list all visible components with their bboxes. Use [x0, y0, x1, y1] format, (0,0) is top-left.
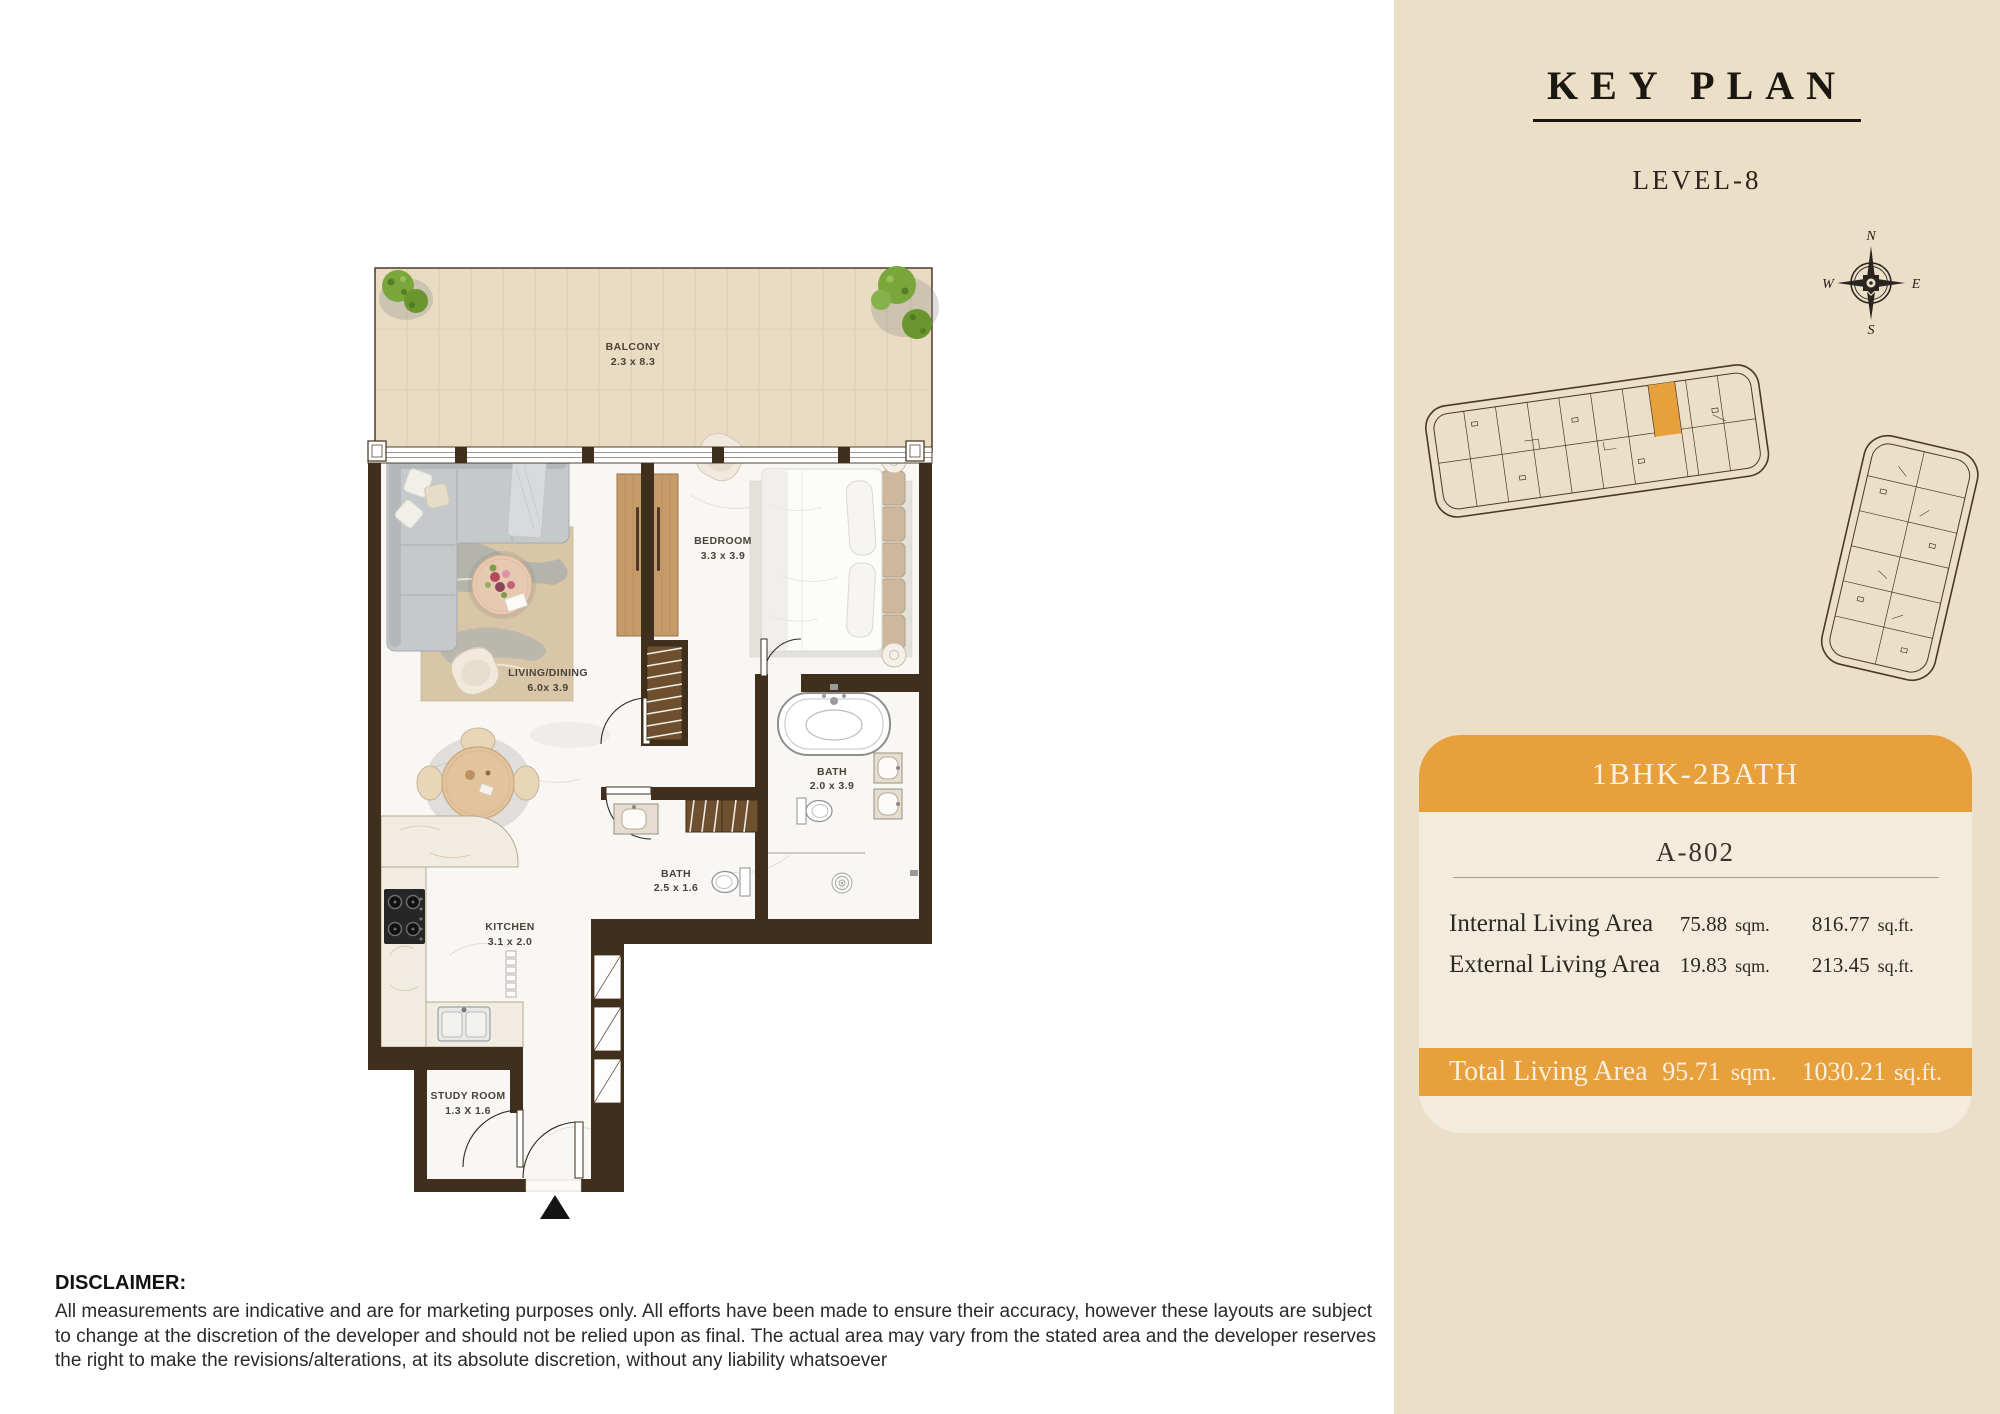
- kitchen-sink: [438, 1007, 490, 1041]
- kitchen-label: KITCHEN: [485, 921, 534, 933]
- ensuite-dims: 2.0 x 3.9: [810, 780, 854, 792]
- floor-plan: BALCONY 2.3 x 8.3: [360, 255, 945, 1230]
- total-sqft-value: 1030.21: [1802, 1057, 1887, 1087]
- internal-sqft-value: 816.77: [1812, 912, 1870, 937]
- living-dims: 6.0x 3.9: [527, 682, 568, 694]
- total-sqft-unit: sq.ft.: [1894, 1060, 1942, 1087]
- compass-north: N: [1865, 229, 1876, 244]
- disclaimer: DISCLAIMER: All measurements are indicat…: [55, 1272, 1390, 1374]
- unit-type-banner: 1BHK-2BATH: [1419, 735, 1972, 812]
- study-dims: 1.3 X 1.6: [445, 1105, 491, 1117]
- unit-type-label: 1BHK-2BATH: [1592, 756, 1800, 792]
- entry-arrow: [540, 1195, 570, 1219]
- disclaimer-heading: DISCLAIMER:: [55, 1272, 1390, 1295]
- pillow: [845, 480, 876, 556]
- louver-closet-bath: [686, 800, 758, 832]
- internal-area-label: Internal Living Area: [1449, 910, 1662, 938]
- total-sqm-value: 95.71: [1662, 1057, 1721, 1087]
- total-area-bar: Total Living Area 95.71 sqm. 1030.21 sq.…: [1419, 1048, 1972, 1096]
- hallway-cabinets: [594, 955, 621, 1103]
- balcony-post: [368, 441, 386, 461]
- dining-table: [442, 747, 514, 819]
- coffee-table: [468, 551, 536, 619]
- balcony: BALCONY 2.3 x 8.3: [375, 266, 939, 451]
- compass-west: W: [1822, 277, 1835, 292]
- guest-vanity: [614, 804, 658, 834]
- key-plan-sidebar: KEY PLAN LEVEL-8: [1394, 0, 2000, 1414]
- total-sqm-unit: sqm.: [1731, 1060, 1777, 1087]
- external-sqm-unit: sqm.: [1735, 956, 1770, 977]
- throw-blanket: [507, 458, 546, 538]
- key-plan-title: KEY PLAN: [1533, 62, 1861, 122]
- unit-number: A-802: [1419, 812, 1972, 868]
- internal-sqm-value: 75.88: [1680, 912, 1727, 937]
- unit-info-card: 1BHK-2BATH A-802 Internal Living Area 75…: [1419, 735, 1972, 1133]
- internal-sqm-unit: sqm.: [1735, 915, 1770, 936]
- dining-chair: [417, 766, 443, 800]
- external-sqft-unit: sq.ft.: [1878, 956, 1914, 977]
- study-label: STUDY ROOM: [431, 1090, 506, 1102]
- dining-chair: [513, 766, 539, 800]
- guest-bath-dims: 2.5 x 1.6: [654, 882, 698, 894]
- compass-east: E: [1911, 277, 1921, 292]
- kitchen-counter-curved: [381, 816, 518, 867]
- bedroom-dims: 3.3 x 3.9: [701, 550, 745, 562]
- external-area-row: External Living Area 19.83 sqm. 213.45 s…: [1449, 951, 1942, 979]
- balcony-label: BALCONY: [606, 341, 661, 353]
- key-plan-building-a: [1415, 335, 1780, 545]
- pillow: [846, 562, 876, 637]
- bedroom-label: BEDROOM: [694, 535, 752, 547]
- ensuite-toilet: [797, 798, 832, 824]
- internal-area-row: Internal Living Area 75.88 sqm. 816.77 s…: [1449, 910, 1942, 938]
- key-plan-building-b: [1818, 425, 1983, 690]
- balcony-post: [906, 441, 924, 461]
- compass-icon: N E S W: [1818, 226, 1930, 338]
- external-area-label: External Living Area: [1449, 951, 1662, 979]
- compass-south: S: [1868, 323, 1875, 338]
- louver-closet-hall: [647, 646, 682, 740]
- page: BALCONY 2.3 x 8.3: [0, 0, 2000, 1414]
- living-label: LIVING/DINING: [508, 667, 588, 679]
- side-table: [882, 643, 906, 667]
- balcony-dims: 2.3 x 8.3: [611, 356, 655, 368]
- stove: [384, 889, 425, 944]
- guest-bath-label: BATH: [661, 868, 691, 880]
- internal-sqft-unit: sq.ft.: [1878, 915, 1914, 936]
- unit-card-body: A-802 Internal Living Area 75.88 sqm. 81…: [1419, 812, 1972, 1048]
- disclaimer-body: All measurements are indicative and are …: [55, 1300, 1390, 1374]
- external-sqft-value: 213.45: [1812, 953, 1870, 978]
- ensuite-label: BATH: [817, 766, 847, 778]
- total-area-label: Total Living Area: [1449, 1056, 1662, 1088]
- unit-card-footer: [1419, 1096, 1972, 1133]
- highlighted-unit: [1648, 382, 1682, 437]
- key-plan-level: LEVEL-8: [1394, 165, 2000, 196]
- unit-number-divider: [1453, 877, 1939, 878]
- bed: [762, 469, 905, 651]
- kitchen-dims: 3.1 x 2.0: [488, 936, 532, 948]
- external-sqm-value: 19.83: [1680, 953, 1727, 978]
